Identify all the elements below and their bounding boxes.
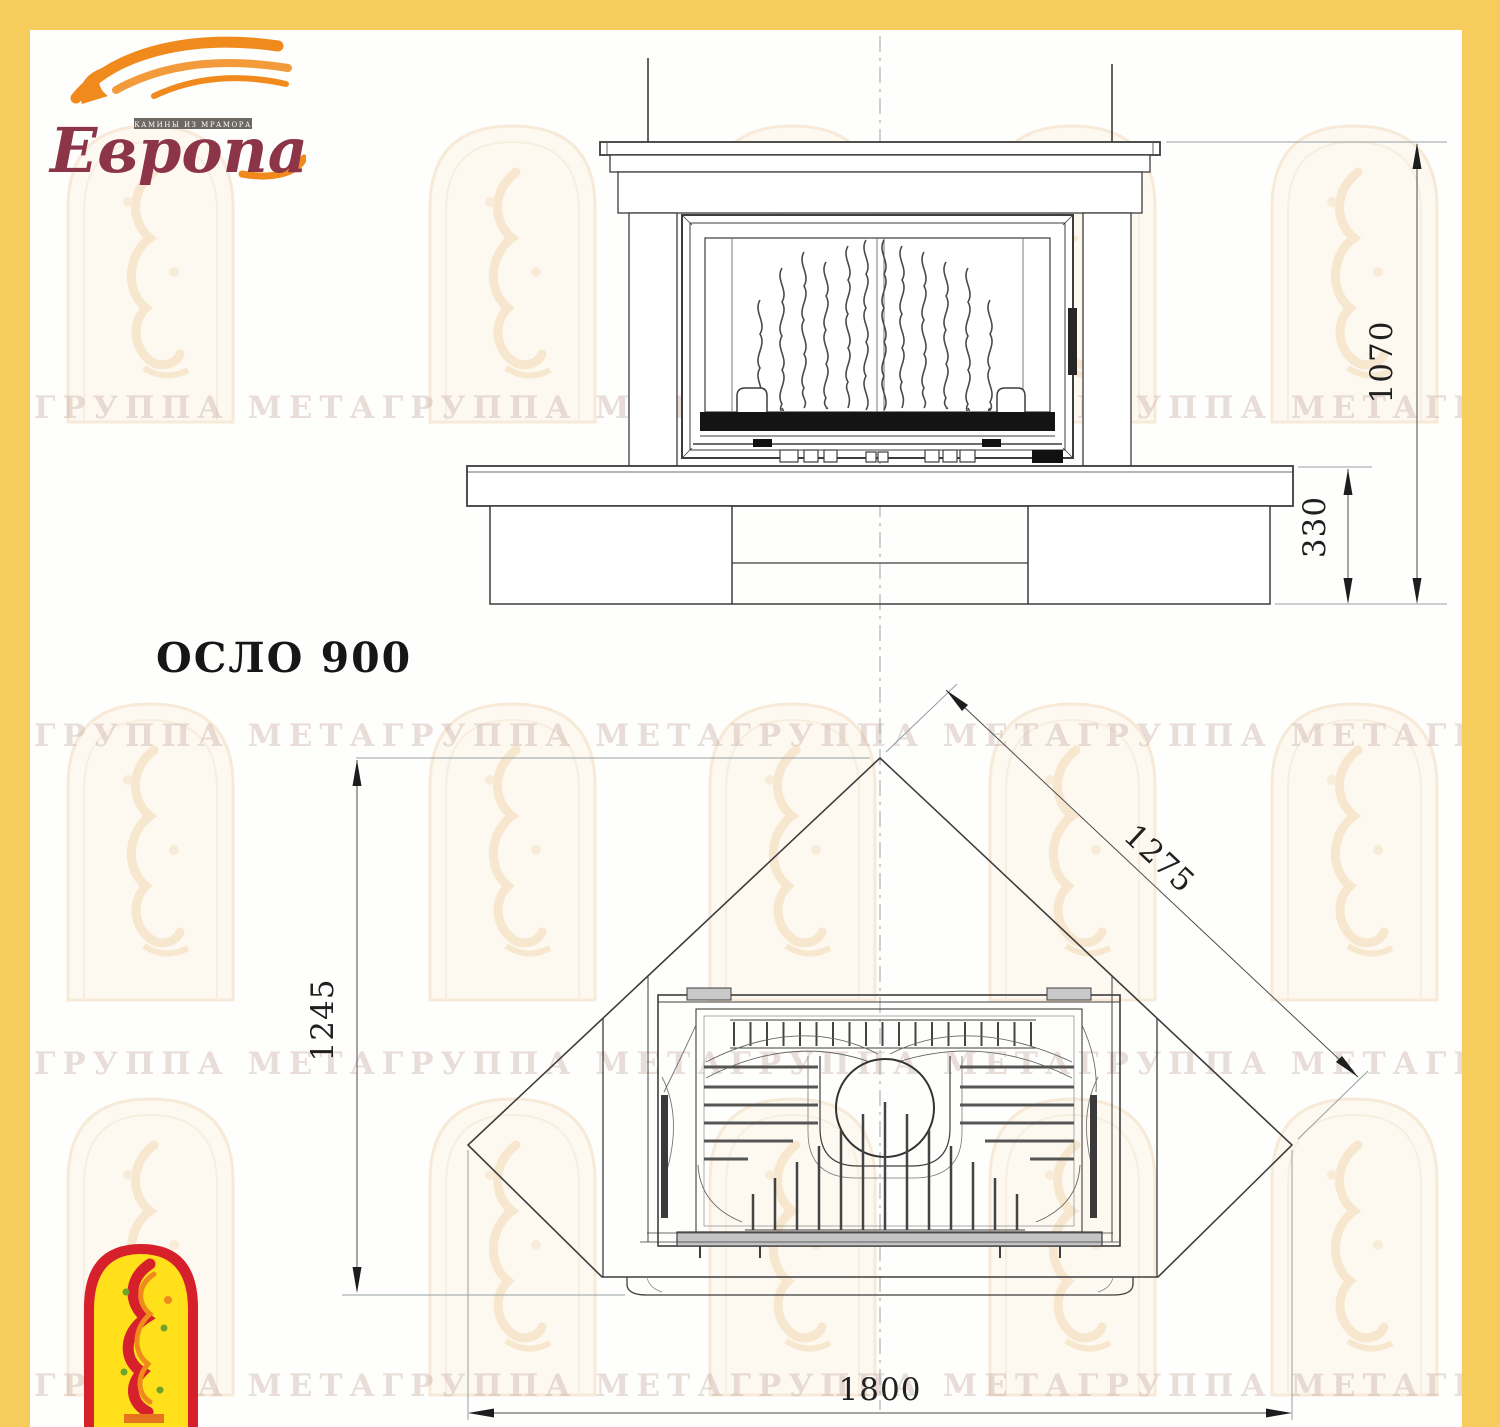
plan-view-dimensions: 1245 1800 1275 (305, 684, 1368, 1420)
dim-width: 1800 (839, 1372, 922, 1408)
grate-bar (700, 412, 1055, 431)
brand-logo: КАМИНЫ ИЗ МРАМОРА Европа (46, 24, 306, 192)
page-border-top (0, 0, 1500, 30)
page-border-right (1462, 0, 1500, 1427)
grate-bars (753, 1102, 1017, 1230)
dim-total-height: 1070 (1364, 321, 1400, 404)
spec-sheet-page: ГРУППА МЕТАГРУППА МЕТАГРУППА МЕТАГРУППА … (0, 0, 1500, 1427)
deflector-fins (734, 1022, 1031, 1046)
dim-base-height: 330 (1297, 496, 1333, 558)
firebird-emblem-icon (80, 1240, 202, 1427)
door-handle (1068, 308, 1077, 375)
technical-drawing: 1070 330 (0, 0, 1500, 1427)
model-title: ОСЛО 900 (156, 634, 412, 682)
logo-wordmark: Европа (48, 114, 306, 187)
page-border-left (0, 0, 30, 1427)
dim-side: 1275 (1117, 818, 1202, 901)
dim-depth: 1245 (305, 979, 341, 1062)
